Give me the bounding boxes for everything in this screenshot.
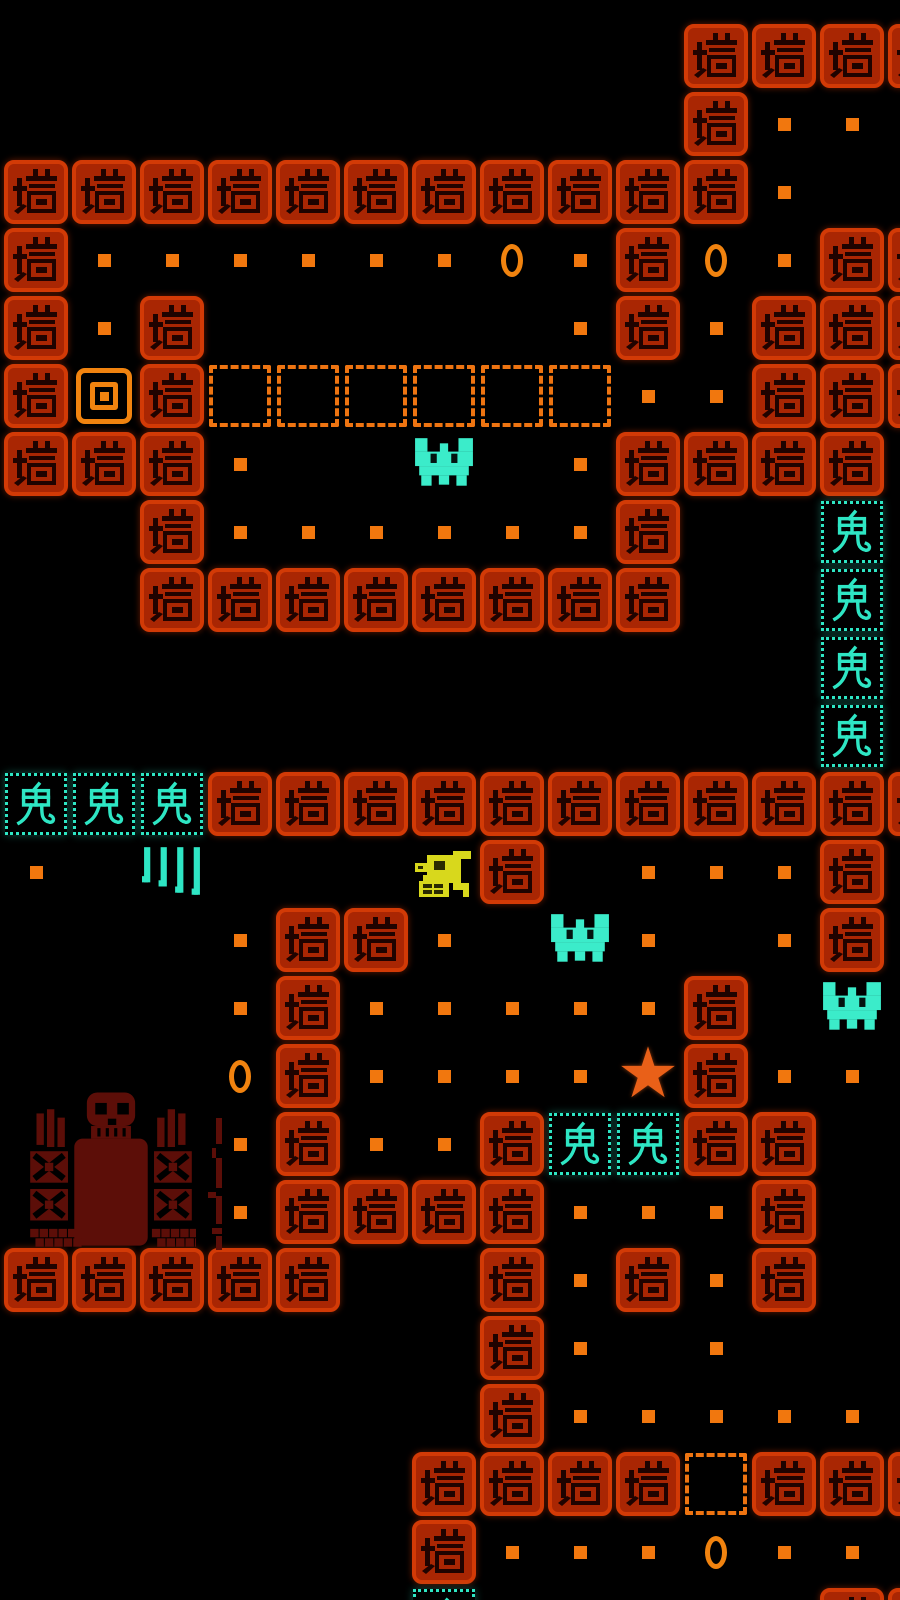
ghost-tile-cell[interactable]	[138, 770, 206, 838]
wall-tile	[888, 772, 900, 836]
pellet	[778, 254, 791, 267]
wall-tile	[820, 432, 884, 496]
wall-glyph-icon	[285, 985, 331, 1031]
ghost-tile-cell[interactable]	[818, 566, 886, 634]
coin-cell[interactable]	[478, 226, 546, 294]
pellet	[846, 1070, 859, 1083]
claw-marks-icon	[142, 847, 202, 897]
wall-tile-cell	[818, 1586, 886, 1600]
wall-tile	[548, 772, 612, 836]
pellet-cell	[750, 1518, 818, 1586]
ghost-tile-cell[interactable]	[2, 770, 70, 838]
pellet	[642, 1206, 655, 1219]
pellet-cell	[614, 838, 682, 906]
wall-tile	[820, 296, 884, 360]
wall-tile	[412, 160, 476, 224]
pellet-cell	[614, 1382, 682, 1450]
wall-tile	[752, 772, 816, 836]
coin-icon[interactable]	[501, 244, 523, 277]
wall-tile-cell	[682, 158, 750, 226]
dashed-zone-cell	[209, 365, 271, 427]
wall-glyph-icon	[285, 1053, 331, 1099]
wall-tile-cell	[546, 1450, 614, 1518]
pellet	[642, 1410, 655, 1423]
wall-tile-cell	[750, 1246, 818, 1314]
wall-tile-cell	[138, 362, 206, 430]
wall-glyph-icon	[829, 33, 875, 79]
bat-icon[interactable]	[549, 914, 611, 966]
coin-icon[interactable]	[229, 1060, 251, 1093]
pellet-cell	[682, 1314, 750, 1382]
wall-glyph-icon	[625, 169, 671, 215]
wall-glyph-icon	[13, 373, 59, 419]
pellet-cell	[546, 1518, 614, 1586]
wall-tile-cell	[70, 1246, 138, 1314]
wall-tile-cell	[818, 770, 886, 838]
coin-icon[interactable]	[705, 1536, 727, 1569]
pellet-cell	[206, 226, 274, 294]
wall-glyph-icon	[693, 985, 739, 1031]
pellet-cell	[750, 1382, 818, 1450]
wall-tile-cell	[138, 498, 206, 566]
wall-tile-cell	[682, 770, 750, 838]
pellet-cell	[478, 1518, 546, 1586]
pellet-cell	[546, 1042, 614, 1110]
game-board[interactable]: ★	[0, 0, 900, 1600]
wall-glyph-icon	[761, 1121, 807, 1167]
dashed-zone-cell-cell	[342, 362, 410, 430]
pellet-cell	[614, 362, 682, 430]
pellet-cell	[342, 498, 410, 566]
wall-tile-cell	[750, 430, 818, 498]
wall-glyph-icon	[761, 1461, 807, 1507]
ghost-tile-cell[interactable]	[818, 702, 886, 770]
pillar-fragments	[208, 1118, 234, 1254]
wall-tile	[276, 908, 340, 972]
pellet	[438, 934, 451, 947]
pellet-cell	[682, 1246, 750, 1314]
wall-glyph-icon	[625, 577, 671, 623]
wall-tile-cell	[614, 566, 682, 634]
pellet	[574, 1206, 587, 1219]
ghost-tile[interactable]	[413, 1589, 475, 1600]
pellet-cell	[682, 1382, 750, 1450]
pellet-cell	[750, 906, 818, 974]
wall-tile	[684, 92, 748, 156]
coin-cell[interactable]	[682, 1518, 750, 1586]
wall-tile-cell	[682, 90, 750, 158]
wall-tile-cell	[750, 770, 818, 838]
pellet	[778, 1410, 791, 1423]
wall-glyph-icon	[149, 577, 195, 623]
pellet-cell	[682, 838, 750, 906]
wall-glyph-icon	[421, 781, 467, 827]
ghost-tile[interactable]	[821, 501, 883, 563]
wall-glyph-icon	[625, 509, 671, 555]
pellet-cell	[818, 1382, 886, 1450]
pellet-cell	[546, 974, 614, 1042]
dashed-zone-cell-cell	[478, 362, 546, 430]
wall-tile	[548, 160, 612, 224]
wall-glyph-icon	[829, 441, 875, 487]
pellet-cell	[410, 498, 478, 566]
wall-tile-cell	[478, 1246, 546, 1314]
wall-tile	[616, 568, 680, 632]
pellet	[642, 390, 655, 403]
wall-tile-cell	[614, 226, 682, 294]
ghost-tile[interactable]	[617, 1113, 679, 1175]
ghost-tile[interactable]	[821, 569, 883, 631]
wall-tile	[684, 160, 748, 224]
pellet-cell	[206, 498, 274, 566]
wall-glyph-icon	[81, 169, 127, 215]
pellet	[438, 526, 451, 539]
pellet-cell	[410, 1042, 478, 1110]
wall-tile	[412, 1180, 476, 1244]
wall-tile-cell	[682, 974, 750, 1042]
ghost-glyph-icon	[151, 781, 193, 827]
wall-tile	[480, 1452, 544, 1516]
bat-icon[interactable]	[821, 982, 883, 1034]
pellet	[710, 1342, 723, 1355]
pellet	[710, 1206, 723, 1219]
ghost-glyph-icon	[831, 645, 873, 691]
wall-tile-cell	[750, 1450, 818, 1518]
wall-tile	[480, 1248, 544, 1312]
wall-tile	[412, 1520, 476, 1584]
wall-glyph-icon	[421, 1461, 467, 1507]
wall-tile	[616, 1248, 680, 1312]
pellet	[506, 1546, 519, 1559]
wall-tile-cell	[70, 158, 138, 226]
wall-tile-cell	[750, 1110, 818, 1178]
wall-tile-cell	[818, 226, 886, 294]
pellet	[710, 390, 723, 403]
ghost-tile-cell[interactable]	[546, 1110, 614, 1178]
wall-glyph-icon	[625, 237, 671, 283]
wall-tile-cell	[546, 770, 614, 838]
spawn-target-inner	[90, 382, 118, 410]
pellet	[574, 1002, 587, 1015]
pellet	[574, 254, 587, 267]
wall-tile-cell	[206, 566, 274, 634]
wall-tile-cell	[2, 362, 70, 430]
pellet	[642, 1002, 655, 1015]
pellet-cell	[750, 90, 818, 158]
pellet	[778, 934, 791, 947]
wall-glyph-icon	[625, 305, 671, 351]
wall-tile	[752, 432, 816, 496]
ghost-tile-cell[interactable]	[614, 1110, 682, 1178]
wall-tile-cell	[410, 1178, 478, 1246]
pellet	[438, 1002, 451, 1015]
ghost-glyph-icon	[83, 781, 125, 827]
dashed-zone-cell	[685, 1453, 747, 1515]
wall-tile-cell	[138, 158, 206, 226]
wall-tile	[684, 772, 748, 836]
pellet	[778, 1070, 791, 1083]
wall-glyph-icon	[149, 373, 195, 419]
dashed-zone-cell	[549, 365, 611, 427]
wall-tile	[140, 296, 204, 360]
wall-tile-cell	[682, 1042, 750, 1110]
ghost-glyph-icon	[831, 577, 873, 623]
wall-tile	[4, 296, 68, 360]
pellet-cell	[818, 1042, 886, 1110]
wall-tile-cell	[478, 1382, 546, 1450]
wall-glyph-icon	[829, 781, 875, 827]
spawn-target-dot	[100, 392, 109, 401]
wall-tile	[480, 568, 544, 632]
wall-tile-cell	[410, 770, 478, 838]
pellet	[642, 866, 655, 879]
wall-tile	[480, 160, 544, 224]
ghost-tile-cell[interactable]	[818, 634, 886, 702]
wall-glyph-icon	[829, 305, 875, 351]
wall-glyph-icon	[13, 441, 59, 487]
pellet	[710, 866, 723, 879]
pellet-cell	[70, 226, 138, 294]
wall-tile-cell	[614, 158, 682, 226]
ghost-tile-cell[interactable]	[410, 1586, 478, 1600]
gravestone	[26, 1084, 196, 1256]
wall-tile	[888, 364, 900, 428]
wall-tile	[820, 228, 884, 292]
wall-tile-cell	[274, 1110, 342, 1178]
wall-tile	[140, 568, 204, 632]
star-icon[interactable]: ★	[617, 1038, 680, 1108]
ghost-tile[interactable]	[5, 773, 67, 835]
pellet	[574, 1274, 587, 1287]
dashed-zone-cell-cell	[274, 362, 342, 430]
wall-glyph-icon	[693, 781, 739, 827]
wall-tile	[684, 432, 748, 496]
pellet	[370, 1002, 383, 1015]
wall-glyph-icon	[149, 441, 195, 487]
ghost-tile-cell[interactable]	[70, 770, 138, 838]
pellet-cell	[682, 362, 750, 430]
pellet	[234, 458, 247, 471]
pellet	[302, 254, 315, 267]
wall-tile-cell	[478, 1178, 546, 1246]
pellet-cell	[750, 838, 818, 906]
wall-tile-cell	[478, 838, 546, 906]
spawn-target-icon	[76, 368, 132, 424]
wall-tile-cell	[818, 362, 886, 430]
wall-glyph-icon	[761, 305, 807, 351]
pellet-cell	[682, 294, 750, 362]
wall-glyph-icon	[489, 849, 535, 895]
wall-glyph-icon	[489, 1325, 535, 1371]
wall-tile-cell	[410, 158, 478, 226]
pellet-cell	[274, 226, 342, 294]
pellet	[574, 1410, 587, 1423]
wall-glyph-icon	[693, 1121, 739, 1167]
pellet-cell	[410, 974, 478, 1042]
wall-tile-cell	[614, 430, 682, 498]
wall-tile	[480, 1316, 544, 1380]
wall-tile	[412, 1452, 476, 1516]
wall-glyph-icon	[693, 441, 739, 487]
ghost-tile[interactable]	[549, 1113, 611, 1175]
wall-tile	[480, 772, 544, 836]
wall-tile	[752, 1180, 816, 1244]
wall-tile	[616, 1452, 680, 1516]
wall-glyph-icon	[149, 509, 195, 555]
wall-glyph-icon	[285, 169, 331, 215]
wall-tile-cell	[886, 362, 900, 430]
wall-tile	[684, 976, 748, 1040]
wall-glyph-icon	[829, 1461, 875, 1507]
duck-creature-cell[interactable]	[410, 838, 478, 906]
wall-tile	[888, 296, 900, 360]
bat-cell[interactable]	[546, 906, 614, 974]
pellet-cell	[206, 974, 274, 1042]
pellet	[778, 1546, 791, 1559]
wall-tile	[208, 568, 272, 632]
wall-tile-cell	[274, 1178, 342, 1246]
wall-glyph-icon	[285, 1121, 331, 1167]
wall-tile-cell	[750, 22, 818, 90]
wall-tile	[752, 364, 816, 428]
wall-tile-cell	[2, 294, 70, 362]
wall-tile-cell	[478, 770, 546, 838]
coin-cell[interactable]	[206, 1042, 274, 1110]
wall-tile	[412, 772, 476, 836]
wall-glyph-icon	[285, 917, 331, 963]
wall-tile	[276, 772, 340, 836]
wall-tile-cell	[614, 1246, 682, 1314]
wall-glyph-icon	[489, 577, 535, 623]
pellet	[370, 254, 383, 267]
pellet	[302, 526, 315, 539]
wall-glyph-icon	[761, 373, 807, 419]
wall-tile-cell	[750, 1178, 818, 1246]
wall-tile	[4, 228, 68, 292]
ghost-tile[interactable]	[141, 773, 203, 835]
wall-tile	[616, 500, 680, 564]
ghost-glyph-icon	[559, 1121, 601, 1167]
wall-glyph-icon	[353, 917, 399, 963]
duck-icon[interactable]	[415, 847, 473, 897]
wall-tile	[344, 568, 408, 632]
wall-glyph-icon	[81, 1257, 127, 1303]
ghost-tile-cell[interactable]	[818, 498, 886, 566]
wall-glyph-icon	[149, 305, 195, 351]
wall-tile-cell	[682, 430, 750, 498]
pellet-cell	[342, 974, 410, 1042]
wall-tile	[140, 1248, 204, 1312]
wall-glyph-icon	[13, 169, 59, 215]
wall-tile-cell	[614, 770, 682, 838]
wall-glyph-icon	[761, 1189, 807, 1235]
pellet-cell	[546, 430, 614, 498]
wall-glyph-icon	[557, 577, 603, 623]
star-cell[interactable]: ★	[614, 1042, 682, 1110]
pellet	[642, 934, 655, 947]
pellet	[710, 1410, 723, 1423]
wall-glyph-icon	[149, 169, 195, 215]
wall-tile-cell	[274, 974, 342, 1042]
wall-tile-cell	[478, 566, 546, 634]
wall-tile-cell	[410, 1518, 478, 1586]
wall-tile-cell	[206, 1246, 274, 1314]
coin-icon[interactable]	[705, 244, 727, 277]
wall-tile-cell	[478, 158, 546, 226]
wall-glyph-icon	[217, 1257, 263, 1303]
wall-glyph-icon	[489, 781, 535, 827]
wall-glyph-icon	[217, 169, 263, 215]
wall-glyph-icon	[489, 1257, 535, 1303]
pellet-cell	[206, 430, 274, 498]
wall-glyph-icon	[421, 577, 467, 623]
wall-tile-cell	[818, 430, 886, 498]
pellet	[370, 526, 383, 539]
wall-glyph-icon	[761, 33, 807, 79]
pellet-cell	[682, 1178, 750, 1246]
wall-glyph-icon	[421, 1529, 467, 1575]
ghost-tile[interactable]	[821, 637, 883, 699]
wall-tile	[276, 1180, 340, 1244]
wall-tile	[820, 24, 884, 88]
wall-tile-cell	[410, 566, 478, 634]
wall-tile	[208, 1248, 272, 1312]
wall-tile	[276, 160, 340, 224]
wall-glyph-icon	[489, 1189, 535, 1235]
wall-tile-cell	[274, 906, 342, 974]
bat-cell[interactable]	[410, 430, 478, 498]
wall-tile-cell	[138, 294, 206, 362]
ghost-glyph-icon	[627, 1121, 669, 1167]
pellet-cell	[546, 1246, 614, 1314]
wall-tile-cell	[478, 1450, 546, 1518]
pellet	[234, 934, 247, 947]
wall-glyph-icon	[489, 1121, 535, 1167]
wall-glyph-icon	[217, 781, 263, 827]
wall-tile	[276, 1112, 340, 1176]
ghost-tile[interactable]	[821, 705, 883, 767]
wall-tile	[548, 1452, 612, 1516]
wall-tile	[276, 1248, 340, 1312]
wall-tile	[72, 1248, 136, 1312]
game-screen: ★	[0, 0, 900, 1600]
wall-tile	[616, 432, 680, 496]
bat-icon[interactable]	[413, 438, 475, 490]
wall-tile-cell	[410, 1450, 478, 1518]
pellet-cell	[750, 226, 818, 294]
pellet	[234, 254, 247, 267]
wall-glyph-icon	[285, 1189, 331, 1235]
pellet-cell	[546, 1178, 614, 1246]
wall-tile-cell	[818, 838, 886, 906]
wall-tile	[820, 364, 884, 428]
wall-tile-cell	[2, 430, 70, 498]
pellet	[98, 322, 111, 335]
wall-tile-cell	[342, 906, 410, 974]
wall-tile	[208, 160, 272, 224]
pellet	[778, 186, 791, 199]
wall-tile	[752, 1112, 816, 1176]
bat-cell[interactable]	[818, 974, 886, 1042]
ghost-tile[interactable]	[73, 773, 135, 835]
pellet-cell	[818, 1518, 886, 1586]
pellet-cell	[614, 906, 682, 974]
wall-glyph-icon	[489, 1461, 535, 1507]
coin-cell[interactable]	[682, 226, 750, 294]
pellet-cell	[546, 498, 614, 566]
wall-tile-cell	[2, 1246, 70, 1314]
pellet	[234, 1138, 247, 1151]
